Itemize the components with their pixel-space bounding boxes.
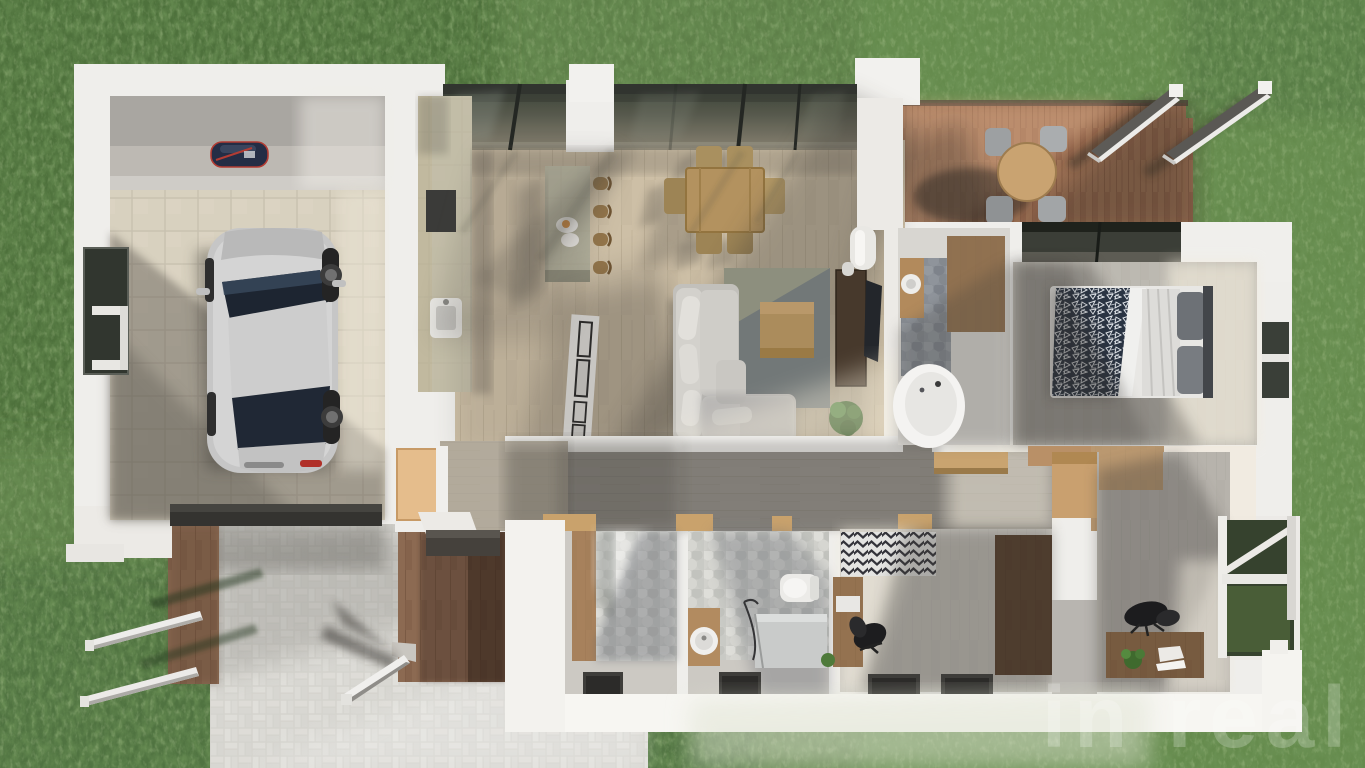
svg-text:in real: in real: [1042, 669, 1354, 766]
